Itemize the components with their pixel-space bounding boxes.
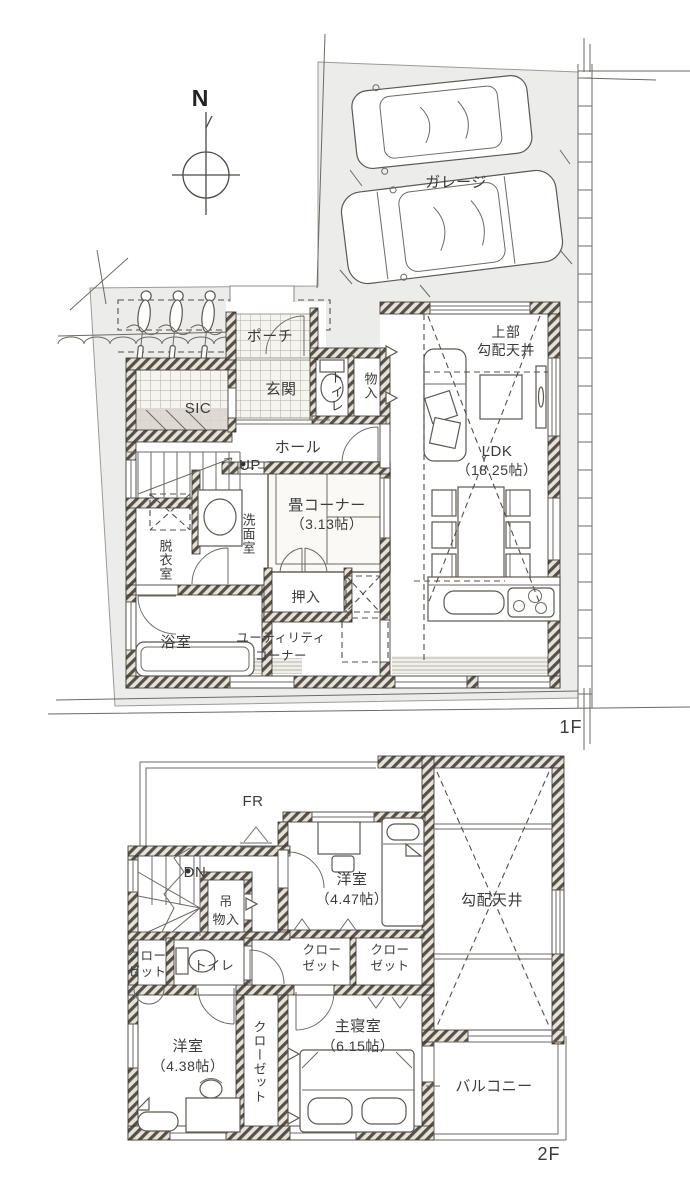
sloped-ceiling-label: 勾配天井 [461, 892, 523, 909]
storage-1f-label: 物入 [363, 372, 378, 400]
boundary-ladder [578, 64, 592, 708]
bath-label: 浴室 [160, 634, 191, 651]
dining-set [432, 487, 530, 580]
master-size-label: （6.15帖） [322, 1038, 395, 1054]
floor1-label: 1F [559, 717, 582, 737]
balcony-label: バルコニー [455, 1078, 532, 1095]
bedroom1-name-label: 洋室 [336, 871, 367, 888]
up-label: UP [239, 457, 261, 474]
dressing-label: 脱衣室 [158, 539, 173, 581]
closet1-label-1: クロー [302, 943, 341, 957]
compass-north-label: N [192, 85, 209, 111]
hanging-storage-label-1: 吊 [219, 894, 233, 909]
closet2-label-1: クロー [370, 943, 409, 957]
living-table [480, 375, 522, 419]
entrance-label: 玄関 [265, 381, 296, 398]
upper-sloped-label-2: 勾配天井 [477, 342, 535, 358]
utility-label-1: ユーティリティ [236, 631, 326, 645]
toilet-2f-label: トイレ [194, 958, 235, 973]
vanity-fixture [198, 490, 242, 546]
tatami-size-label: （3.13帖） [291, 516, 364, 532]
floorplan-page: N ガレージ [0, 0, 690, 1199]
bathtub [136, 642, 254, 676]
kitchen-counter [428, 577, 560, 621]
porch-label: ポーチ [247, 328, 294, 345]
sofa [424, 349, 466, 461]
closet2-label-2: ゼット [370, 959, 409, 973]
closet-left-label-2: ゼット [127, 965, 166, 979]
master-name-label: 主寝室 [335, 1017, 382, 1035]
tatami-name-label: 畳コーナー [288, 497, 366, 514]
utility-label-2: コーナー [255, 649, 307, 663]
washroom-label: 洗面室 [241, 513, 256, 555]
garage-label: ガレージ [425, 174, 487, 191]
closet-vertical-label: クローゼット [252, 1020, 267, 1104]
compass: N [172, 85, 240, 215]
upper-sloped-label-1: 上部 [492, 324, 521, 340]
sic-label: SIC [185, 400, 212, 417]
ldk-size-label: （18.25帖） [456, 462, 537, 478]
bedroom1-size-label: （4.47帖） [316, 891, 389, 907]
fr-label: FR [243, 793, 264, 810]
master-bed [300, 1050, 414, 1132]
toilet-1f-label: トイレ [329, 371, 344, 413]
bedroom2-name-label: 洋室 [172, 1038, 203, 1055]
floor2-label: 2F [537, 1144, 560, 1164]
floor1-plan: ポーチ 玄関 トイレ 物入 SIC ホール UP 畳コーナー （3.13帖） 洗… [126, 302, 583, 737]
dn-label: DN [184, 864, 207, 881]
bedroom2-size-label: （4.38帖） [152, 1058, 225, 1074]
floor2-plan: DN [127, 756, 566, 1164]
oshiire-label: 押入 [292, 589, 321, 605]
closet1-label-2: ゼット [302, 959, 341, 973]
closet-left-label-1: クロー [127, 949, 166, 963]
floorplan-drawing: N ガレージ [0, 0, 690, 1199]
hall-label: ホール [275, 439, 322, 456]
tv-board [536, 366, 546, 428]
ldk-name-label: LDK [482, 443, 513, 460]
hanging-storage-label-2: 物入 [212, 912, 239, 927]
